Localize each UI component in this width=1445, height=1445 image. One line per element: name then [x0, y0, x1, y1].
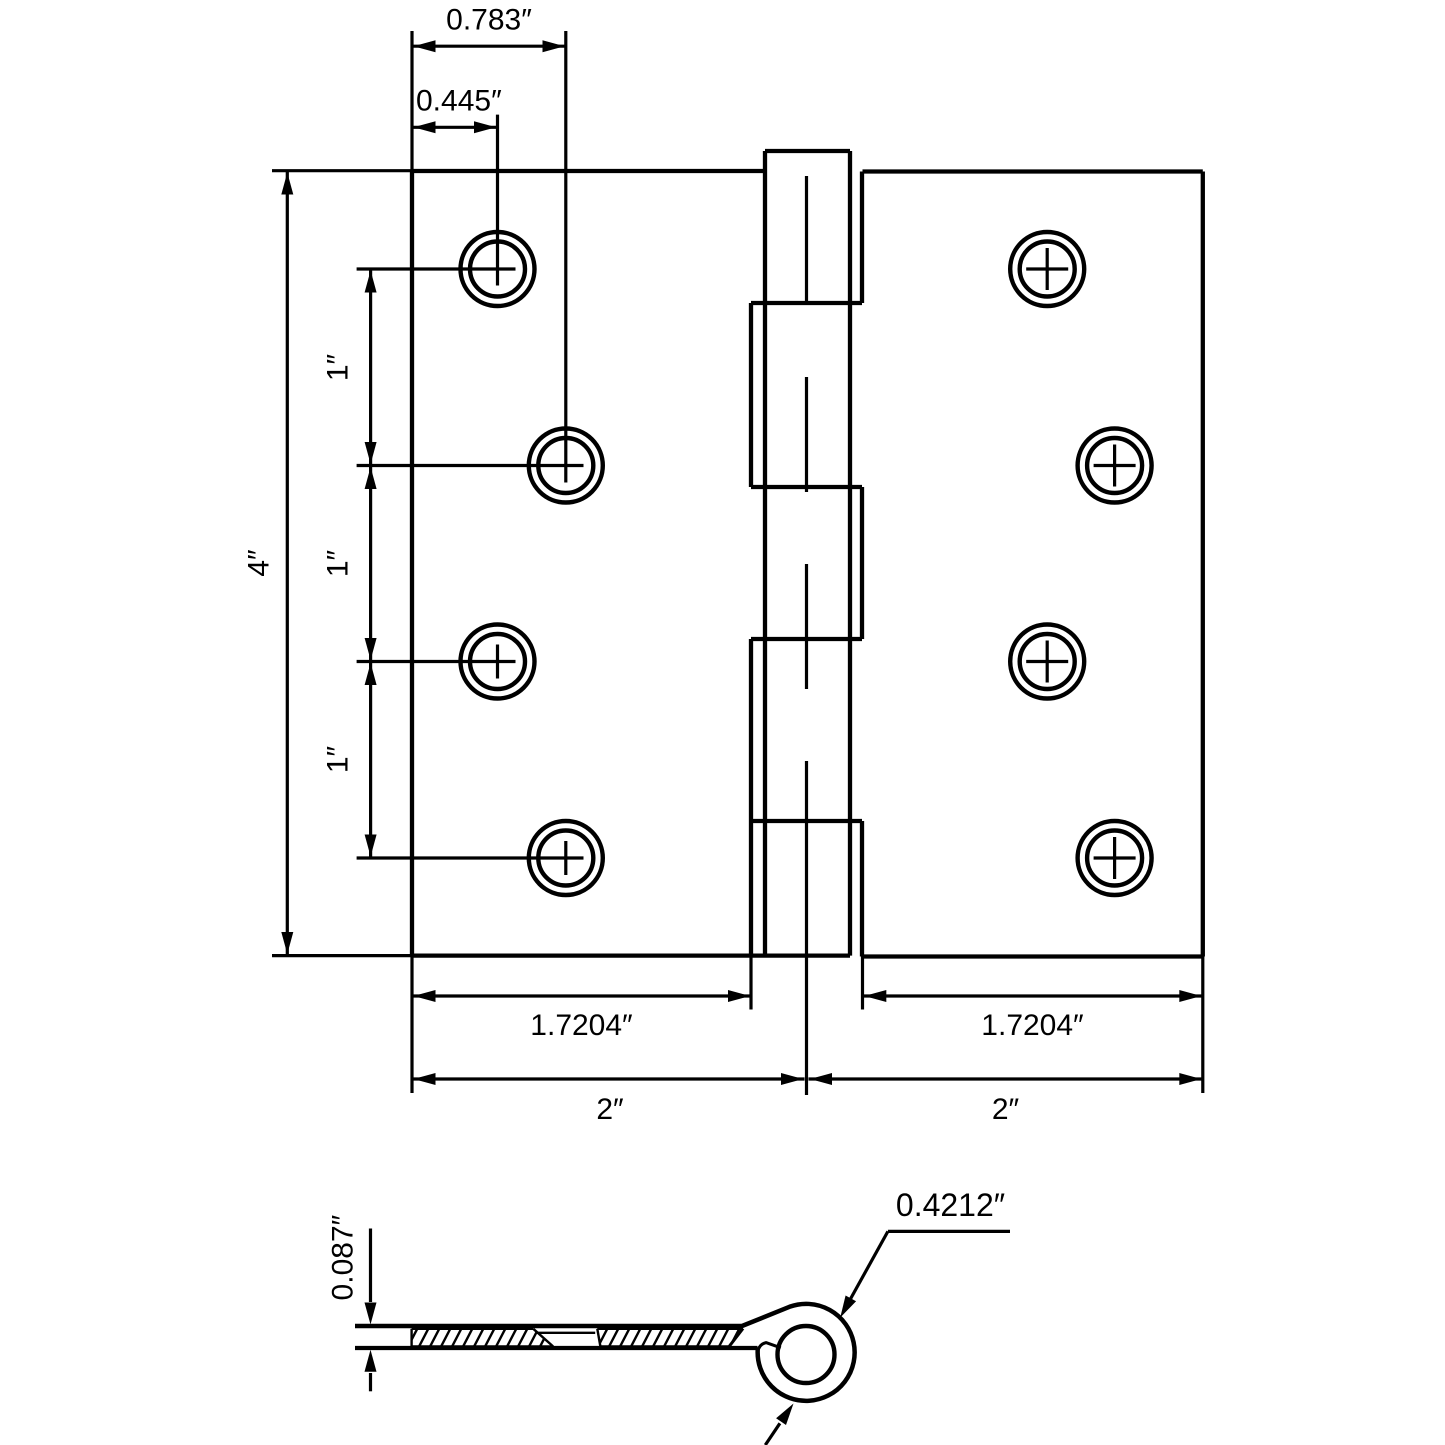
svg-text:1″: 1″ — [322, 549, 355, 577]
svg-text:1″: 1″ — [322, 745, 355, 773]
svg-text:1″: 1″ — [322, 353, 355, 381]
svg-text:2″: 2″ — [596, 1093, 624, 1126]
svg-text:0.783″: 0.783″ — [446, 4, 532, 37]
svg-text:1.7204″: 1.7204″ — [530, 1009, 633, 1042]
svg-text:0.4212″: 0.4212″ — [896, 1187, 1005, 1223]
svg-text:2″: 2″ — [992, 1093, 1020, 1126]
svg-text:0.445″: 0.445″ — [416, 85, 502, 118]
svg-text:0.087″: 0.087″ — [326, 1214, 359, 1300]
svg-text:1.7204″: 1.7204″ — [981, 1009, 1084, 1042]
svg-text:4″: 4″ — [243, 549, 276, 577]
